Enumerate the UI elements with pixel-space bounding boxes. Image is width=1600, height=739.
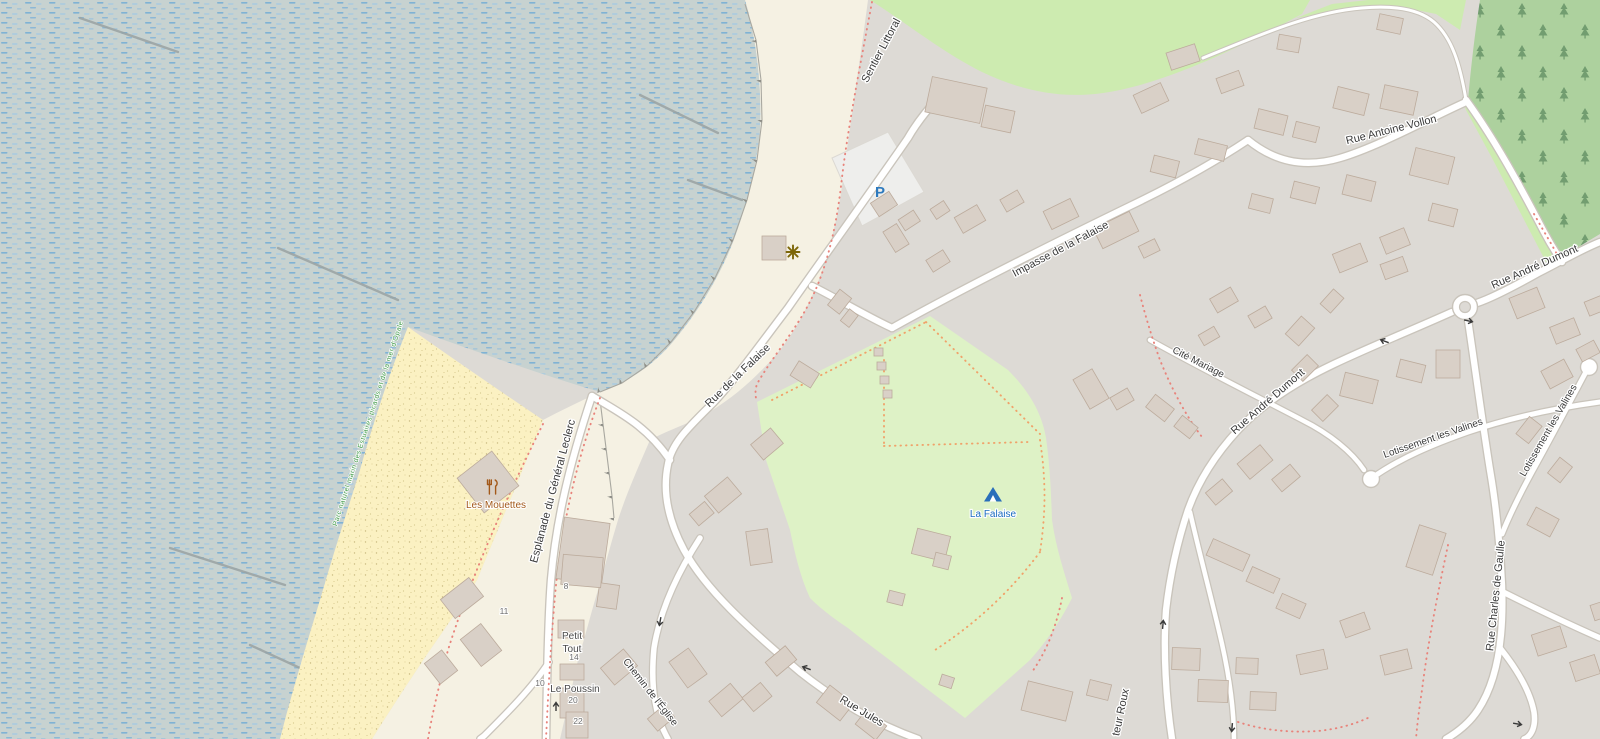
house-number-8: 8 [564,581,569,591]
place-label-petit-tout-1: Petit [562,631,582,642]
house-number-22: 22 [573,716,583,726]
house-number-20: 20 [568,695,578,705]
map-canvas[interactable]: P Sentier Littoral Impasse de [0,0,1600,739]
house-number-11: 11 [500,606,509,616]
parking-icon: P [875,184,885,201]
place-label-le-poussin: Le Poussin [550,684,599,695]
house-number-10: 10 [535,678,545,688]
viewpoint-icon [787,246,800,259]
house-number-14: 14 [569,652,579,662]
roundabout [1453,295,1478,320]
restaurant-label: Les Mouettes [466,500,526,511]
campsite-label: La Falaise [970,509,1017,520]
